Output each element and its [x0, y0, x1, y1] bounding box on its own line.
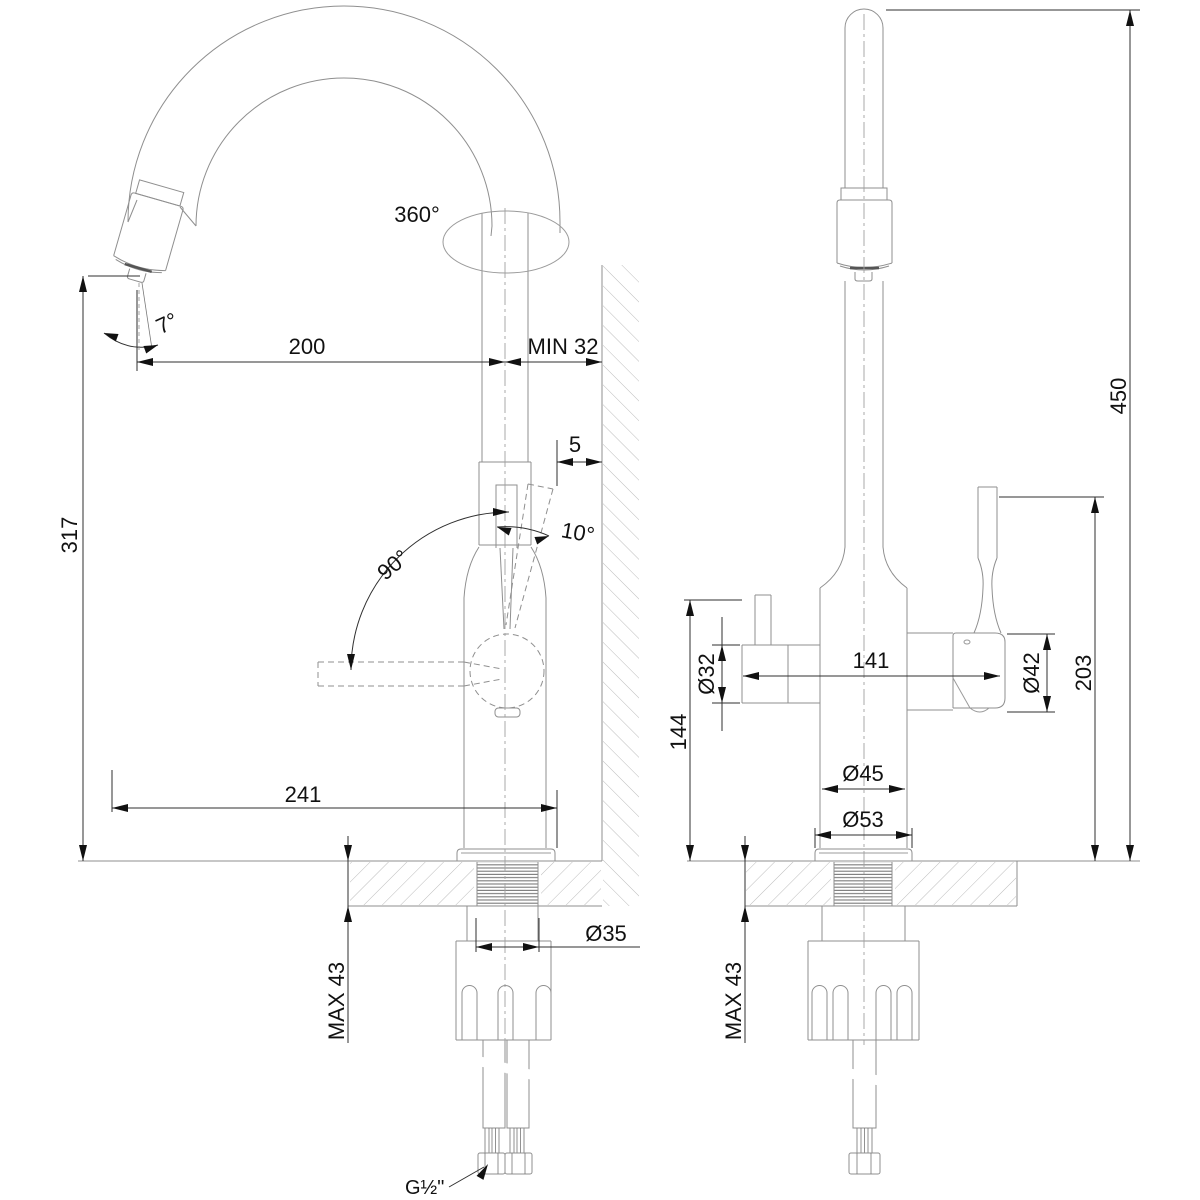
handle-horizontal-dashed	[318, 662, 502, 686]
dim-overall-height-label: 450	[1106, 378, 1131, 415]
dim-handle-swing-label: 90°	[372, 545, 414, 586]
dim-body-dia-label: Ø45	[842, 761, 884, 786]
mixer-handle-stem	[978, 487, 997, 558]
ball-joint-dashed	[470, 634, 544, 708]
base-flange-front	[815, 849, 912, 861]
dim-base-dia-label: Ø53	[842, 807, 884, 832]
shank-threads	[477, 862, 538, 906]
faucet-technical-drawing-page: 360° 7° 200 MIN 32 5 10° 90° 317 241 MAX…	[0, 0, 1200, 1200]
supply-hose	[483, 1040, 505, 1128]
hose-hex-nut-front	[849, 1153, 880, 1174]
faucet-body-side	[457, 462, 555, 861]
dim-min-wall-label: MIN 32	[528, 334, 599, 359]
dim-swivel-label: 360°	[394, 202, 440, 227]
dim-overall-reach-label: 241	[285, 782, 322, 807]
dim-handle-tilt-label: 10°	[559, 517, 596, 547]
spray-head	[109, 179, 188, 288]
dim-spray-angle-label: 7°	[152, 307, 182, 339]
dim-wall-gap-label: 5	[569, 432, 581, 457]
spout-column-front	[820, 9, 907, 588]
swivel-ellipse	[443, 211, 569, 273]
dimensions-side: 360° 7° 200 MIN 32 5 10° 90° 317 241 MAX…	[57, 202, 640, 1199]
base-flange-side	[457, 849, 555, 861]
front-view: 450 203 144 Ø32 141 Ø42 Ø45 Ø53 MAX 43	[666, 9, 1140, 1174]
dim-body-width-label: 141	[853, 648, 890, 673]
countertop-section-front	[687, 861, 1140, 906]
dim-spout-height-label: 317	[57, 517, 82, 554]
dim-mixer-valve-dia-label: Ø42	[1019, 652, 1044, 694]
wall-section	[602, 265, 639, 906]
dim-side-valve-dia-label: Ø32	[694, 653, 719, 695]
mounting-front	[808, 862, 919, 1174]
mounting-nut-front	[808, 941, 919, 1040]
hose-hex-nut	[505, 1153, 532, 1174]
dim-thread-label: G½"	[405, 1177, 444, 1199]
shank-threads-front	[834, 862, 892, 906]
dim-shank-dia-label: Ø35	[585, 921, 627, 946]
filter-handle-stem	[755, 595, 771, 645]
dim-max-deck-front-label: MAX 43	[721, 962, 746, 1040]
dim-side-handle-height-label: 144	[666, 714, 691, 751]
aerator-front	[837, 188, 892, 281]
side-view: 360° 7° 200 MIN 32 5 10° 90° 317 241 MAX…	[57, 6, 640, 1199]
dim-handle-top-height-label: 203	[1071, 655, 1096, 692]
mixer-valve-block	[953, 633, 1005, 708]
dim-max-deck-side-label: MAX 43	[324, 962, 349, 1040]
faucet-body-front	[742, 487, 1005, 861]
faucet-dimension-drawing: 360° 7° 200 MIN 32 5 10° 90° 317 241 MAX…	[0, 0, 1200, 1200]
supply-hose	[507, 1040, 529, 1128]
spout-arc	[128, 6, 569, 462]
dim-reach-label: 200	[289, 334, 326, 359]
swing-arc-90	[351, 512, 509, 670]
mounting-side	[456, 862, 551, 1174]
